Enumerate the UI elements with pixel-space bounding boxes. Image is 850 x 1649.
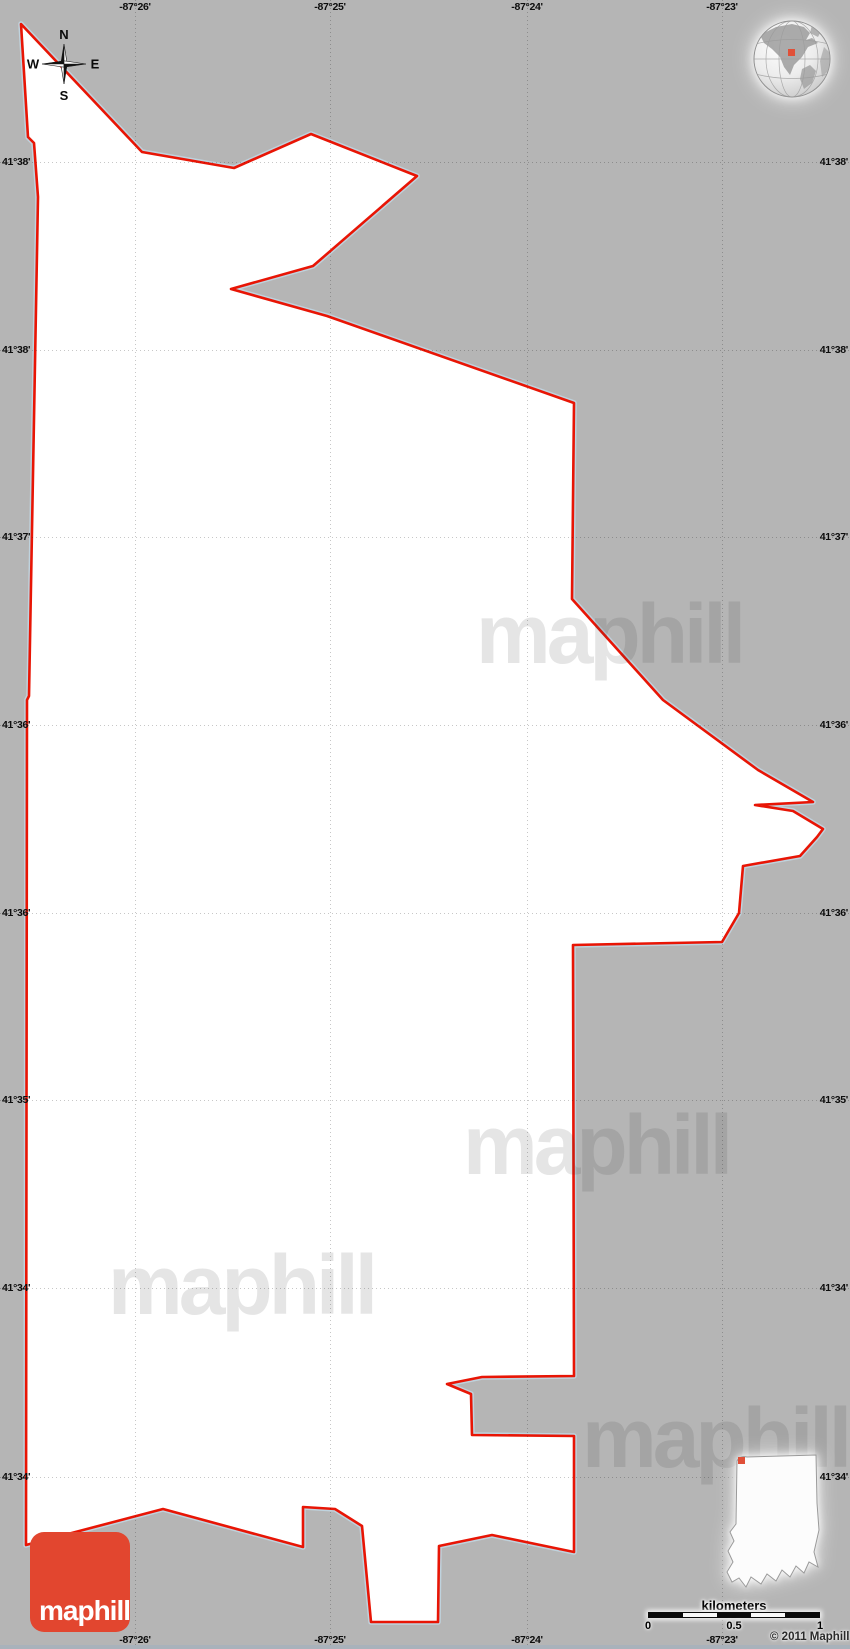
- compass-east-label: E: [91, 57, 100, 72]
- latitude-label-right: 41°34': [817, 1282, 848, 1294]
- latitude-label-right: 41°37': [817, 531, 848, 543]
- inset-location-marker: [738, 1457, 745, 1464]
- latitude-label-left: 41°38': [2, 344, 27, 356]
- latitude-label-right: 41°38': [817, 156, 848, 168]
- bottom-edge-strip: [0, 1645, 850, 1649]
- scalebar-tick-label: 0.5: [719, 1620, 749, 1632]
- latitude-label-left: 41°35': [2, 1094, 27, 1106]
- inset-map-indiana: [712, 1448, 827, 1598]
- scalebar: [648, 1612, 820, 1618]
- watermark-maphill: maphill: [108, 1243, 374, 1327]
- latitude-label-right: 41°35': [817, 1094, 848, 1106]
- scalebar-title: kilometers: [659, 1598, 809, 1613]
- longitude-label-top: -87°26': [105, 1, 165, 13]
- latitude-label-right: 41°36': [817, 719, 848, 731]
- globe-location-marker: [788, 49, 795, 56]
- globe-locator-icon: [746, 13, 838, 105]
- compass-north-label: N: [59, 27, 68, 42]
- maphill-logo-text: maphill: [39, 1597, 130, 1625]
- territory-outline: [21, 24, 823, 1622]
- longitude-label-top: -87°23': [692, 1, 752, 13]
- maphill-logo[interactable]: maphill: [30, 1532, 130, 1632]
- watermark-maphill: maphill: [476, 592, 742, 676]
- latitude-label-left: 41°34': [2, 1282, 27, 1294]
- compass-south-label: S: [60, 88, 69, 103]
- latitude-label-left: 41°36': [2, 719, 27, 731]
- copyright-text: © 2011 Maphill: [770, 1631, 849, 1643]
- latitude-label-right: 41°38': [817, 344, 848, 356]
- latitude-label-right: 41°34': [817, 1471, 848, 1483]
- map-canvas[interactable]: maphill maphill maphill maphill N S W E: [0, 0, 850, 1649]
- compass-rose-icon: N S W E: [22, 20, 110, 112]
- longitude-label-top: -87°25': [300, 1, 360, 13]
- longitude-label-top: -87°24': [497, 1, 557, 13]
- watermark-maphill: maphill: [463, 1103, 729, 1187]
- latitude-label-left: 41°38': [2, 156, 27, 168]
- latitude-label-left: 41°34': [2, 1471, 27, 1483]
- latitude-label-right: 41°36': [817, 907, 848, 919]
- compass-west-label: W: [27, 57, 40, 72]
- latitude-label-left: 41°37': [2, 531, 27, 543]
- latitude-label-left: 41°36': [2, 907, 27, 919]
- scalebar-tick-label: 0: [633, 1620, 663, 1632]
